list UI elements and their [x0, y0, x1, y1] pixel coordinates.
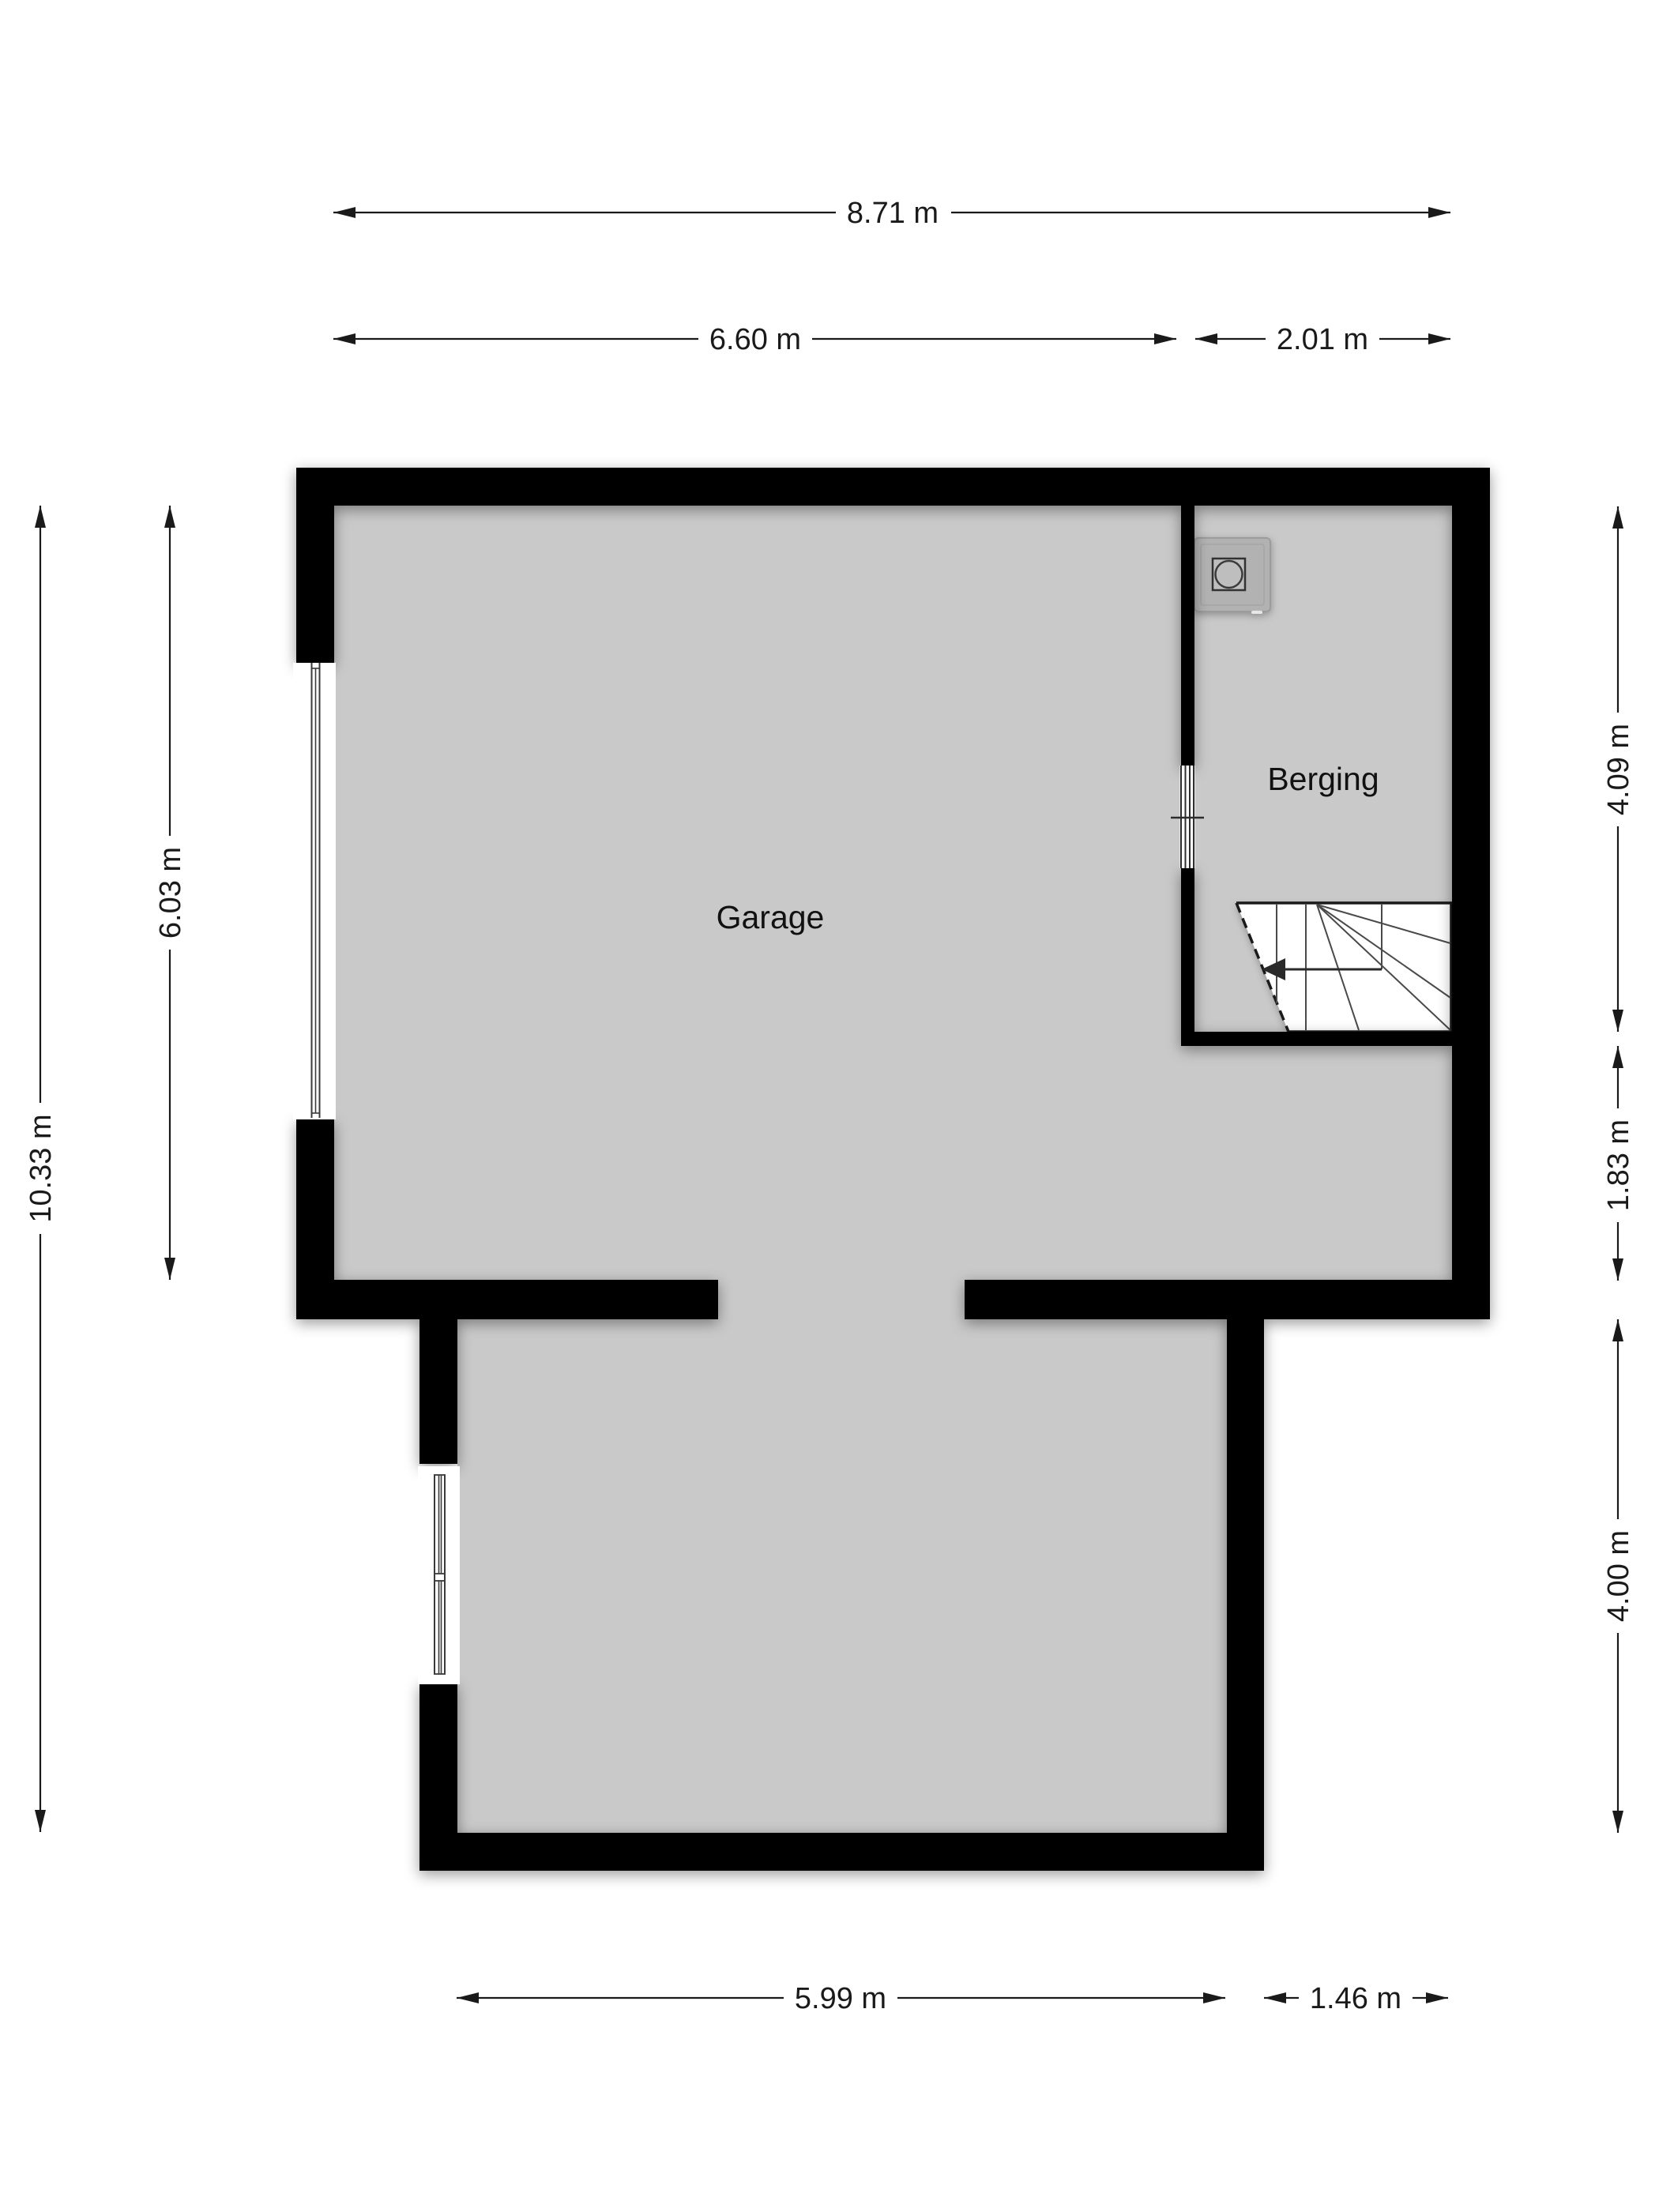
svg-text:5.99 m: 5.99 m — [795, 1982, 886, 2015]
svg-text:4.00 m: 4.00 m — [1602, 1530, 1635, 1622]
svg-text:2.01 m: 2.01 m — [1277, 323, 1368, 356]
svg-text:Berging: Berging — [1267, 761, 1379, 797]
svg-text:1.83 m: 1.83 m — [1602, 1119, 1635, 1211]
svg-text:10.33 m: 10.33 m — [24, 1114, 58, 1222]
svg-text:8.71 m: 8.71 m — [847, 197, 939, 230]
svg-text:4.09 m: 4.09 m — [1602, 724, 1635, 815]
svg-text:6.03 m: 6.03 m — [154, 847, 187, 939]
svg-text:Garage: Garage — [717, 899, 825, 935]
svg-text:6.60 m: 6.60 m — [709, 323, 801, 356]
svg-text:1.46 m: 1.46 m — [1310, 1982, 1401, 2015]
